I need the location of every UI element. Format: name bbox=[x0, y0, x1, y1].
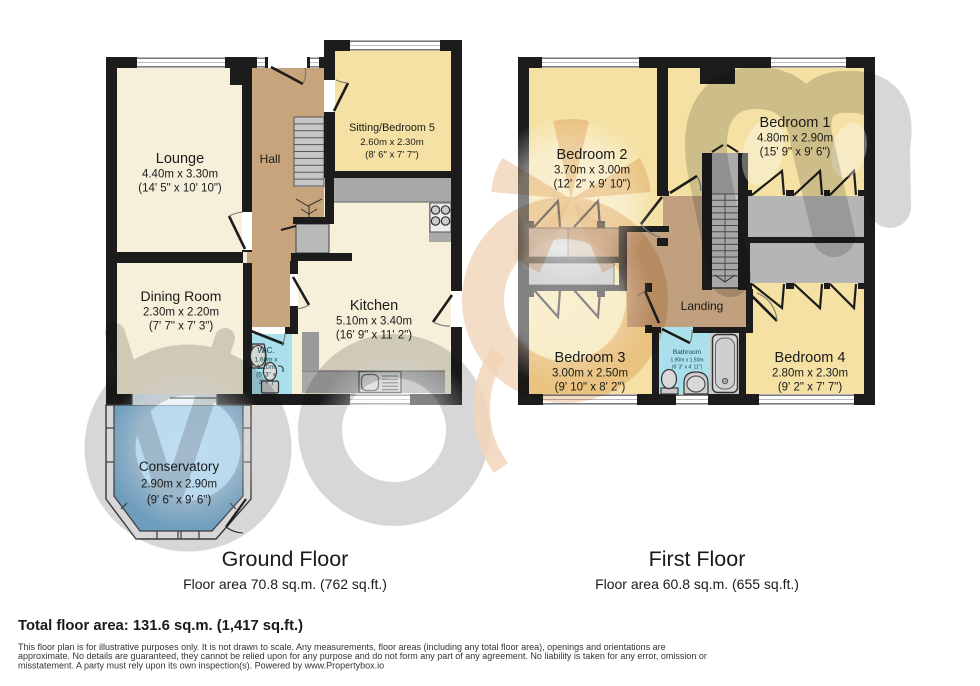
svg-text:3.00m x 2.50m: 3.00m x 2.50m bbox=[552, 368, 628, 380]
svg-text:2.90m x 2.90m: 2.90m x 2.90m bbox=[141, 479, 217, 491]
svg-text:Hall: Hall bbox=[260, 152, 281, 166]
svg-text:Conservatory: Conservatory bbox=[139, 459, 220, 474]
svg-text:(8' 6" x 7' 7"): (8' 6" x 7' 7") bbox=[365, 150, 419, 161]
svg-text:2.60m x 2.30m: 2.60m x 2.30m bbox=[360, 137, 423, 148]
svg-text:Floor area 70.8 sq.m. (762 sq.: Floor area 70.8 sq.m. (762 sq.ft.) bbox=[183, 576, 387, 592]
svg-text:(16' 9" x 11' 2"): (16' 9" x 11' 2") bbox=[336, 330, 412, 342]
svg-text:2.80m x 2.30m: 2.80m x 2.30m bbox=[772, 368, 848, 380]
svg-text:1.90m x 1.50m: 1.90m x 1.50m bbox=[670, 358, 703, 364]
svg-text:(7' 7" x 7' 3"): (7' 7" x 7' 3") bbox=[149, 321, 213, 333]
svg-text:Floor area 60.8 sq.m. (655 sq.: Floor area 60.8 sq.m. (655 sq.ft.) bbox=[595, 576, 799, 592]
svg-text:3.70m x 3.00m: 3.70m x 3.00m bbox=[554, 165, 630, 177]
svg-text:(9' 10" x 8' 2"): (9' 10" x 8' 2") bbox=[555, 382, 626, 394]
svg-text:Bedroom 1: Bedroom 1 bbox=[760, 115, 831, 131]
svg-text:(9' 2" x 7' 7"): (9' 2" x 7' 7") bbox=[778, 382, 842, 394]
svg-text:(15' 9" x 9' 6"): (15' 9" x 9' 6") bbox=[760, 147, 831, 159]
svg-text:W.C.: W.C. bbox=[257, 346, 274, 355]
svg-text:4.40m x 3.30m: 4.40m x 3.30m bbox=[142, 169, 218, 181]
svg-text:1.10m: 1.10m bbox=[257, 364, 275, 371]
svg-text:First Floor: First Floor bbox=[649, 547, 746, 571]
svg-text:3' 7"): 3' 7") bbox=[259, 379, 274, 386]
svg-text:(6' 3" x 4' 11"): (6' 3" x 4' 11") bbox=[672, 365, 703, 371]
svg-text:Total floor area: 131.6 sq.m.: Total floor area: 131.6 sq.m. (1,417 sq.… bbox=[18, 618, 303, 634]
svg-text:Bedroom 2: Bedroom 2 bbox=[557, 147, 628, 163]
svg-text:2.30m x 2.20m: 2.30m x 2.20m bbox=[143, 307, 219, 319]
svg-text:Bedroom 4: Bedroom 4 bbox=[775, 350, 846, 366]
svg-text:Ground Floor: Ground Floor bbox=[222, 547, 349, 571]
svg-text:1.60m x: 1.60m x bbox=[254, 357, 278, 364]
svg-text:Bathroom: Bathroom bbox=[673, 349, 701, 356]
svg-text:(14' 5" x 10' 10"): (14' 5" x 10' 10") bbox=[138, 183, 222, 195]
svg-text:Bedroom 3: Bedroom 3 bbox=[555, 350, 626, 366]
svg-text:Sitting/Bedroom 5: Sitting/Bedroom 5 bbox=[349, 122, 435, 134]
svg-text:misstatement. A party must rel: misstatement. A party must rely upon its… bbox=[18, 660, 384, 670]
svg-text:Kitchen: Kitchen bbox=[350, 298, 398, 314]
svg-text:(5' 3" x: (5' 3" x bbox=[256, 372, 277, 379]
svg-text:4.80m x 2.90m: 4.80m x 2.90m bbox=[757, 133, 833, 145]
svg-text:(9' 6" x 9' 6"): (9' 6" x 9' 6") bbox=[147, 495, 211, 507]
svg-text:Lounge: Lounge bbox=[156, 151, 204, 167]
svg-text:Dining Room: Dining Room bbox=[141, 288, 222, 304]
svg-text:Landing: Landing bbox=[681, 299, 724, 313]
svg-text:5.10m x 3.40m: 5.10m x 3.40m bbox=[336, 316, 412, 328]
svg-text:(12' 2" x 9' 10"): (12' 2" x 9' 10") bbox=[553, 179, 630, 191]
